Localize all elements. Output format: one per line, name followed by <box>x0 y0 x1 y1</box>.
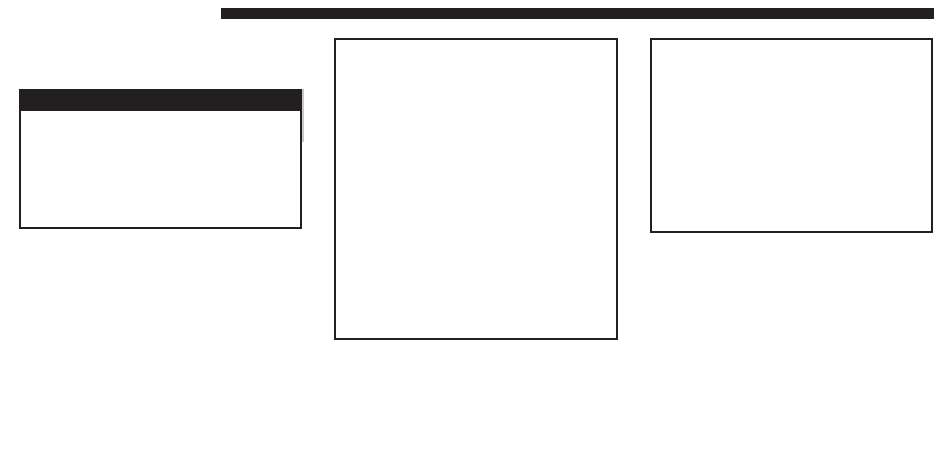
left-placeholder-box <box>19 89 302 229</box>
scanned-page <box>0 0 950 469</box>
top-horizontal-rule <box>221 8 934 19</box>
right-placeholder-box <box>650 38 933 233</box>
scan-shadow-edge <box>302 89 304 142</box>
left-box-header-bar <box>21 91 300 111</box>
center-placeholder-box <box>334 38 618 340</box>
